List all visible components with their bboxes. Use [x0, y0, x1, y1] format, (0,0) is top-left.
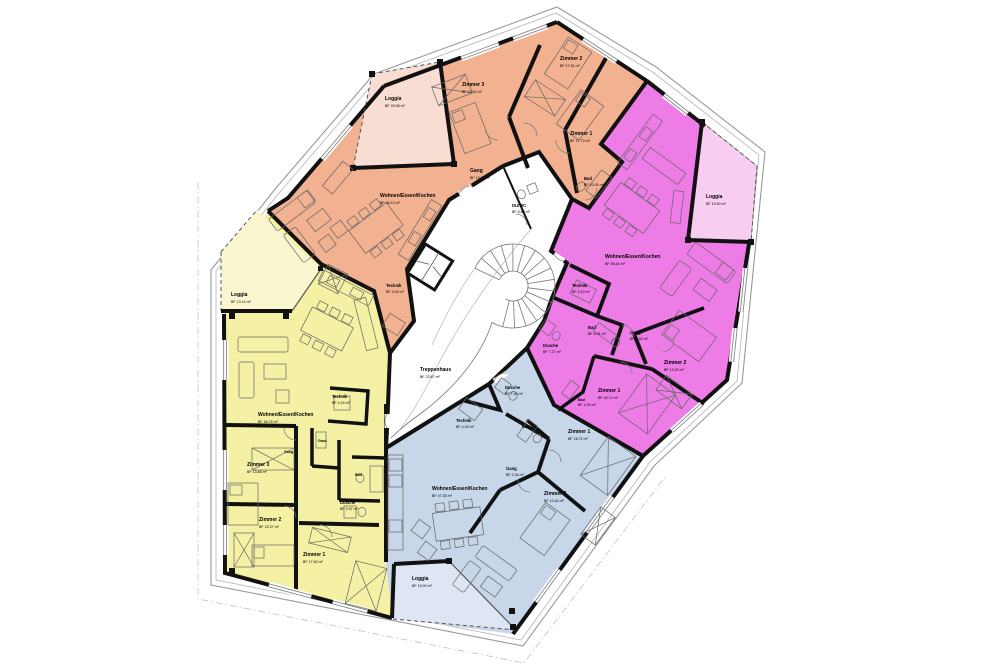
svg-text:BF 16.72 m²: BF 16.72 m²	[598, 396, 619, 400]
svg-text:DU/WC: DU/WC	[512, 203, 526, 208]
svg-text:Zimmer 3: Zimmer 3	[462, 82, 484, 88]
svg-text:Gang: Gang	[506, 466, 517, 471]
svg-text:Loggia: Loggia	[231, 292, 248, 298]
svg-text:Gang: Gang	[470, 168, 483, 174]
svg-text:Zimmer 1: Zimmer 1	[303, 552, 325, 558]
svg-text:BF 7.40 m²: BF 7.40 m²	[505, 392, 524, 396]
svg-text:BF 5.62 m²: BF 5.62 m²	[512, 210, 531, 214]
svg-text:BF 19.00 m²: BF 19.00 m²	[412, 584, 433, 588]
svg-text:Bad: Bad	[355, 473, 362, 477]
svg-text:BF 7.27 m²: BF 7.27 m²	[543, 350, 562, 354]
svg-text:BF 46.10 m²: BF 46.10 m²	[380, 201, 401, 205]
svg-text:BF 13.90 m²: BF 13.90 m²	[470, 176, 491, 180]
svg-text:Gang: Gang	[630, 330, 641, 335]
svg-text:Dusche: Dusche	[543, 343, 559, 348]
svg-text:BF 9.97 m²: BF 9.97 m²	[340, 507, 359, 511]
svg-text:BF 23.67 m²: BF 23.67 m²	[420, 375, 441, 379]
svg-text:Loggia: Loggia	[385, 96, 402, 102]
svg-text:Zimmer 1: Zimmer 1	[598, 388, 620, 394]
svg-text:BF 5.10 m²: BF 5.10 m²	[572, 290, 591, 294]
svg-text:Zimmer 2: Zimmer 2	[259, 517, 281, 523]
svg-text:Bad: Bad	[584, 176, 592, 181]
svg-text:Bad: Bad	[578, 398, 585, 402]
svg-text:Loggia: Loggia	[706, 194, 723, 200]
svg-text:Wohnen/Essen/Kochen: Wohnen/Essen/Kochen	[605, 254, 660, 260]
svg-text:BF 56.64 m²: BF 56.64 m²	[605, 262, 626, 266]
svg-text:BF 4.53 m²: BF 4.53 m²	[386, 290, 405, 294]
svg-text:Loggia: Loggia	[412, 576, 429, 582]
svg-text:Dusche: Dusche	[505, 385, 521, 390]
svg-text:Dusche: Dusche	[340, 500, 356, 505]
svg-text:BF 15.37 m²: BF 15.37 m²	[259, 525, 280, 529]
svg-text:BF 19.60 m²: BF 19.60 m²	[706, 202, 727, 206]
svg-text:BF 47.35 m²: BF 47.35 m²	[432, 494, 453, 498]
svg-text:BF 46.76 m²: BF 46.76 m²	[258, 420, 279, 424]
svg-text:BF 13.68 m²: BF 13.68 m²	[247, 470, 268, 474]
svg-text:Zimmer 3: Zimmer 3	[247, 462, 269, 468]
svg-text:Treppenhaus: Treppenhaus	[420, 367, 451, 373]
svg-text:Zimmer 1: Zimmer 1	[570, 131, 592, 137]
svg-text:Gard.: Gard.	[318, 439, 327, 443]
svg-text:BF 13.14 m²: BF 13.14 m²	[231, 300, 252, 304]
svg-text:Wohnen/Essen/Kochen: Wohnen/Essen/Kochen	[258, 412, 313, 418]
svg-text:BF 17.73 m²: BF 17.73 m²	[570, 139, 591, 143]
svg-text:Wohnen/Essen/Kochen: Wohnen/Essen/Kochen	[380, 193, 435, 199]
svg-text:BF 4.20 m²: BF 4.20 m²	[578, 403, 597, 407]
svg-text:Zimmer 2: Zimmer 2	[560, 56, 582, 62]
svg-text:BF 13.20 m²: BF 13.20 m²	[664, 368, 685, 372]
svg-text:Zimmer 2: Zimmer 2	[544, 491, 566, 497]
svg-text:BF 17.62 m²: BF 17.62 m²	[303, 560, 324, 564]
svg-text:BF 12.64 m²: BF 12.64 m²	[544, 499, 565, 503]
svg-text:BF 4.24 m²: BF 4.24 m²	[332, 401, 351, 405]
svg-text:BF 2.52 m²: BF 2.52 m²	[630, 337, 649, 341]
svg-text:Gang: Gang	[284, 450, 293, 454]
svg-text:BF 10.00 m²: BF 10.00 m²	[584, 183, 605, 187]
svg-text:Bad: Bad	[522, 425, 529, 429]
svg-text:BF 6.01 m²: BF 6.01 m²	[588, 332, 607, 336]
svg-text:Technik: Technik	[332, 394, 348, 399]
svg-text:BF 2.34 m²: BF 2.34 m²	[506, 473, 525, 477]
svg-text:Bad: Bad	[588, 325, 596, 330]
svg-text:BF 16.72 m²: BF 16.72 m²	[568, 437, 589, 441]
svg-text:BF 13.92 m²: BF 13.92 m²	[462, 90, 483, 94]
svg-text:BF 17.51 m²: BF 17.51 m²	[560, 64, 581, 68]
svg-text:BF 25.58 m²: BF 25.58 m²	[385, 104, 406, 108]
svg-text:Zimmer 1: Zimmer 1	[568, 429, 590, 435]
svg-text:Technik: Technik	[572, 283, 588, 288]
svg-text:Wohnen/Essen/Kochen: Wohnen/Essen/Kochen	[432, 486, 487, 492]
svg-text:BF 4.39 m²: BF 4.39 m²	[456, 425, 475, 429]
svg-text:Zimmer 2: Zimmer 2	[664, 360, 686, 366]
svg-text:Technik: Technik	[456, 418, 472, 423]
svg-text:Technik: Technik	[386, 283, 402, 288]
